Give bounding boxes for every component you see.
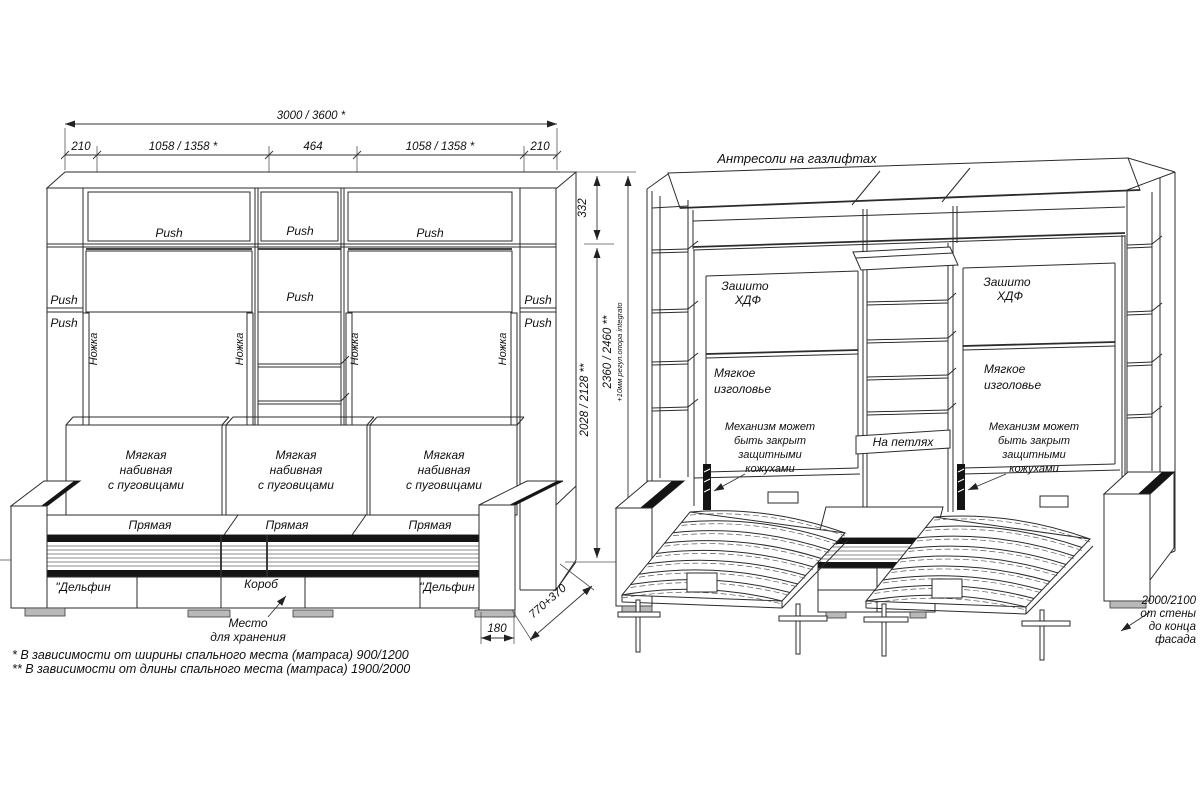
dolphin-label: "Дельфин [419,580,475,594]
feet [25,608,515,617]
mechanism-callout-right: Механизм может быть закрыт защитными кож… [968,421,1079,490]
headboard-label: изголовье [984,378,1041,392]
straight-label: Прямая [129,518,173,532]
cushion-label: набивная [270,463,323,477]
cushion-label: набивная [418,463,471,477]
dim-total-height: 2360 / 2460 ** [602,315,614,389]
dim-side-right: 210 [529,141,550,153]
cushion-label: Мягкая [125,448,167,462]
fold-leg-strip [247,313,253,425]
leg-label: Ножка [497,333,509,366]
push-label: Push [50,293,78,307]
wall-depth-label: 2000/2100 [1141,595,1197,607]
mechanism-label: быть закрыт [734,435,806,447]
push-label: Push [524,293,552,307]
box-label: Короб [244,577,279,591]
bed-latch [768,492,798,503]
closed-view: 3000 / 3600 * 210 1058 / 1358 * 464 1058… [0,110,638,644]
cushion-label: набивная [120,463,173,477]
cushion-block-left: Мягкая набивная с пуговицами [66,417,229,515]
bed-leg-bar [1022,621,1070,626]
straight-label: Прямая [409,518,453,532]
push-label: Push [50,316,78,330]
dim-plinth-depth: 180 [487,623,507,635]
dim-total-width: 3000 / 3600 * [277,110,346,122]
hdf-label: ХДФ [996,289,1023,303]
fold-leg-strip [511,313,517,425]
push-label: Push [416,226,444,240]
leg-label: Ножка [349,333,361,366]
straight-label: Прямая [266,518,310,532]
cushion-block-center: Мягкая набивная с пуговицами [226,417,374,515]
open-view: Антресоли на газлифтах [616,151,1197,660]
wall-depth-label: от стены [1140,608,1196,620]
dim-inner-height: 2028 / 2128 ** [579,363,591,437]
dolphin-label: "Дельфин [55,580,111,594]
dim-center: 464 [303,141,322,153]
leg-label: Ножка [234,333,246,366]
open-view-right-pedestal [1104,472,1174,608]
bed-handle [687,573,717,592]
mechanism-label: защитными [1001,449,1066,461]
cushion-label: Мягкая [423,448,465,462]
mechanism-label: быть закрыт [998,435,1070,447]
hdf-label: ХДФ [734,293,761,307]
dim-bed-depth: 770+370 [527,582,569,621]
cushion-label: с пуговицами [258,478,334,492]
mechanism-label: защитными [737,449,802,461]
push-label: Push [524,316,552,330]
mechanism-label: кожухами [1009,463,1058,475]
hdf-label: Зашито [983,275,1031,289]
headboard-label: Мягкое [714,366,756,380]
bed-leg [636,600,640,652]
bed-leg [882,604,886,656]
storage-label: для хранения [210,630,286,644]
push-label: Push [155,226,183,240]
leg-label: Ножка [88,333,100,366]
sofa-base: "Дельфин Короб "Дельфин [47,577,480,608]
cushion-label: с пуговицами [406,478,482,492]
hinges-label: На петлях [873,435,935,449]
dim-antresol-height: 332 [577,198,589,218]
seat-band: Прямая Прямая Прямая [47,515,504,535]
open-view-title: Антресоли на газлифтах [716,151,877,166]
footnote-width: * В зависимости от ширины спального мест… [12,648,409,662]
headboard-label: Мягкое [984,362,1026,376]
push-label: Push [286,224,314,238]
bed-leg-bar [779,616,827,621]
cushion-label: Мягкая [275,448,317,462]
open-view-panel-labels: Зашито ХДФ Зашито ХДФ Мягкое изголовье М… [714,275,1041,396]
bed-latch [1040,496,1068,507]
mattress-band [47,535,490,577]
dim-side-left: 210 [70,141,91,153]
center-flap [853,247,958,270]
footnotes: * В зависимости от ширины спального мест… [12,648,410,676]
headboard-label: изголовье [714,382,771,396]
mechanism-label: Механизм может [725,421,815,433]
fold-leg-strip [83,313,89,425]
fold-down-bed-right [864,464,1093,660]
bed-leg [796,604,800,654]
fold-leg-strip [346,313,352,425]
mechanism-label: Механизм может [989,421,1079,433]
dim-bay-left: 1058 / 1358 * [149,141,218,153]
bed-leg-bar [864,617,908,622]
bed-handle [932,579,962,598]
open-view-carcass [647,158,1175,560]
hinges-callout: На петлях [856,430,950,454]
mechanism-label: кожухами [745,463,794,475]
push-label: Push [286,290,314,304]
wall-depth-label: до конца [1149,621,1196,633]
dim-bay-right: 1058 / 1358 * [406,141,475,153]
footnote-length: ** В зависимости от длины спального мест… [12,662,410,676]
furniture-technical-drawing: 3000 / 3600 * 210 1058 / 1358 * 464 1058… [0,0,1200,800]
closed-view-sofa: Мягкая набивная с пуговицами Мягкая наби… [11,417,576,644]
wall-depth-label: фасада [1155,634,1196,646]
hdf-label: Зашито [721,279,769,293]
bed-leg-bar [618,612,660,617]
bed-leg [1040,610,1044,660]
support-note: +10мм регул.опора integrato [615,302,624,401]
cushion-label: с пуговицами [108,478,184,492]
mechanism-callout-left: Механизм может быть закрыт защитными кож… [714,421,815,491]
storage-label: Место [228,616,267,630]
closed-view-top-dimensions: 3000 / 3600 * 210 1058 / 1358 * 464 1058… [61,110,561,172]
